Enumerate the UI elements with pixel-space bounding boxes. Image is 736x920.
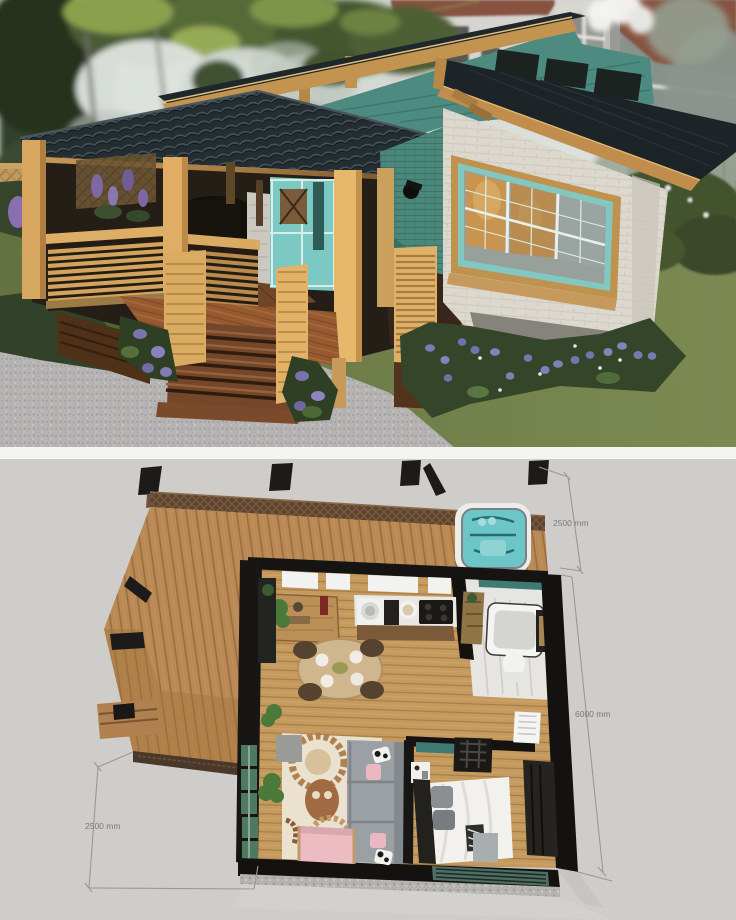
svg-text:2500 mm: 2500 mm (85, 821, 120, 831)
svg-text:2500 mm: 2500 mm (553, 518, 588, 528)
svg-text:6000 mm: 6000 mm (575, 709, 610, 719)
